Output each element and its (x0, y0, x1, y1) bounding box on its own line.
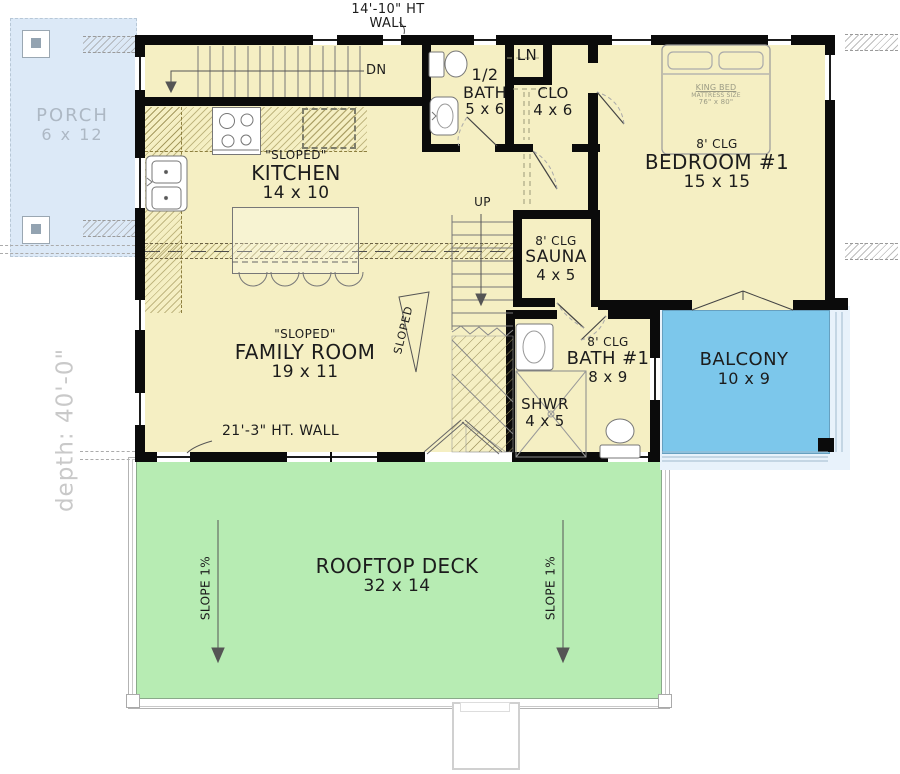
shower-label: SHWR4 x 5 (508, 396, 582, 429)
roof-line-strip (845, 34, 898, 51)
kitchen-label: "SLOPED" KITCHEN 14 x 10 (220, 149, 372, 203)
window (825, 55, 835, 100)
bedroom1-label: 8' CLG BEDROOM #1 15 x 15 (622, 138, 812, 192)
balcony-post (818, 438, 834, 452)
family-room-label: "SLOPED" FAMILY ROOM 19 x 11 (226, 328, 384, 382)
window (287, 452, 330, 462)
wall (793, 300, 835, 310)
range-stove (212, 107, 261, 155)
floor-plan: 14'-10" HT WALL DN UP PORCH6 x 12 1/2 BA… (0, 0, 900, 774)
door-opening (533, 144, 572, 152)
balcony-label: BALCONY 10 x 9 (686, 350, 802, 387)
top-wall-note-line2: WALL (328, 17, 448, 31)
slope-left-label: SLOPE 1% (199, 556, 212, 620)
roof-line-strip (845, 243, 898, 260)
door-opening (557, 310, 608, 319)
wall (135, 452, 660, 462)
wall (506, 310, 515, 462)
wall (422, 45, 431, 152)
projection-line (0, 245, 135, 246)
closet-label: CLO4 x 6 (516, 85, 590, 118)
window (157, 452, 190, 462)
window (135, 158, 145, 208)
wall (513, 298, 555, 307)
deck-post (126, 694, 140, 708)
door-opening (460, 144, 495, 152)
linen-label: LN (510, 47, 544, 64)
projection-line (80, 451, 135, 452)
window (135, 57, 145, 90)
rooftop-deck-label: ROOFTOP DECK 32 x 14 (286, 555, 508, 596)
window (474, 35, 496, 45)
wall (135, 97, 430, 106)
door-opening (692, 300, 793, 310)
door-opening (425, 452, 512, 462)
stairs-up-label: UP (452, 196, 513, 209)
wall (513, 210, 600, 219)
window (135, 300, 145, 330)
bath1-label: 8' CLG BATH #1 8 x 9 (556, 336, 660, 385)
window (608, 452, 648, 462)
balcony-post (835, 298, 848, 310)
wall (588, 35, 598, 63)
kitchen-counter (145, 107, 182, 313)
window (383, 35, 401, 45)
depth-dimension-label: depth: 40'-0" (53, 348, 78, 512)
king-bed-label: KING BED MATTRESS SIZE 76" x 80" (662, 84, 770, 107)
sauna-label: 8' CLG SAUNA 4 x 5 (516, 235, 596, 283)
top-wall-note-line1: 14'-10" HT (328, 3, 448, 17)
family-wall-height-note: 21'-3" HT. WALL (222, 424, 339, 439)
wall (506, 310, 557, 319)
porch-post (22, 216, 50, 244)
refrigerator-space (302, 108, 356, 149)
deck-post (658, 694, 672, 708)
window (612, 35, 651, 45)
wall (495, 144, 514, 152)
window (332, 452, 377, 462)
door-opening (555, 298, 591, 307)
stairs-down-label: DN (366, 64, 387, 78)
wall (422, 144, 460, 152)
projection-line (80, 459, 135, 460)
window (313, 35, 337, 45)
kitchen-island (232, 207, 359, 274)
window (135, 393, 145, 425)
top-wall-height-note: 14'-10" HT WALL (328, 3, 448, 32)
chimney-chase (452, 702, 520, 770)
window (768, 35, 791, 45)
roof-line-strip (83, 36, 135, 53)
roof-line-strip (83, 220, 135, 237)
porch-label: PORCH6 x 12 (10, 106, 135, 143)
slope-right-label: SLOPE 1% (544, 556, 557, 620)
projection-line (0, 253, 135, 254)
chimney-chase-lip (460, 702, 510, 712)
porch-post (22, 30, 50, 58)
wall (598, 300, 692, 310)
